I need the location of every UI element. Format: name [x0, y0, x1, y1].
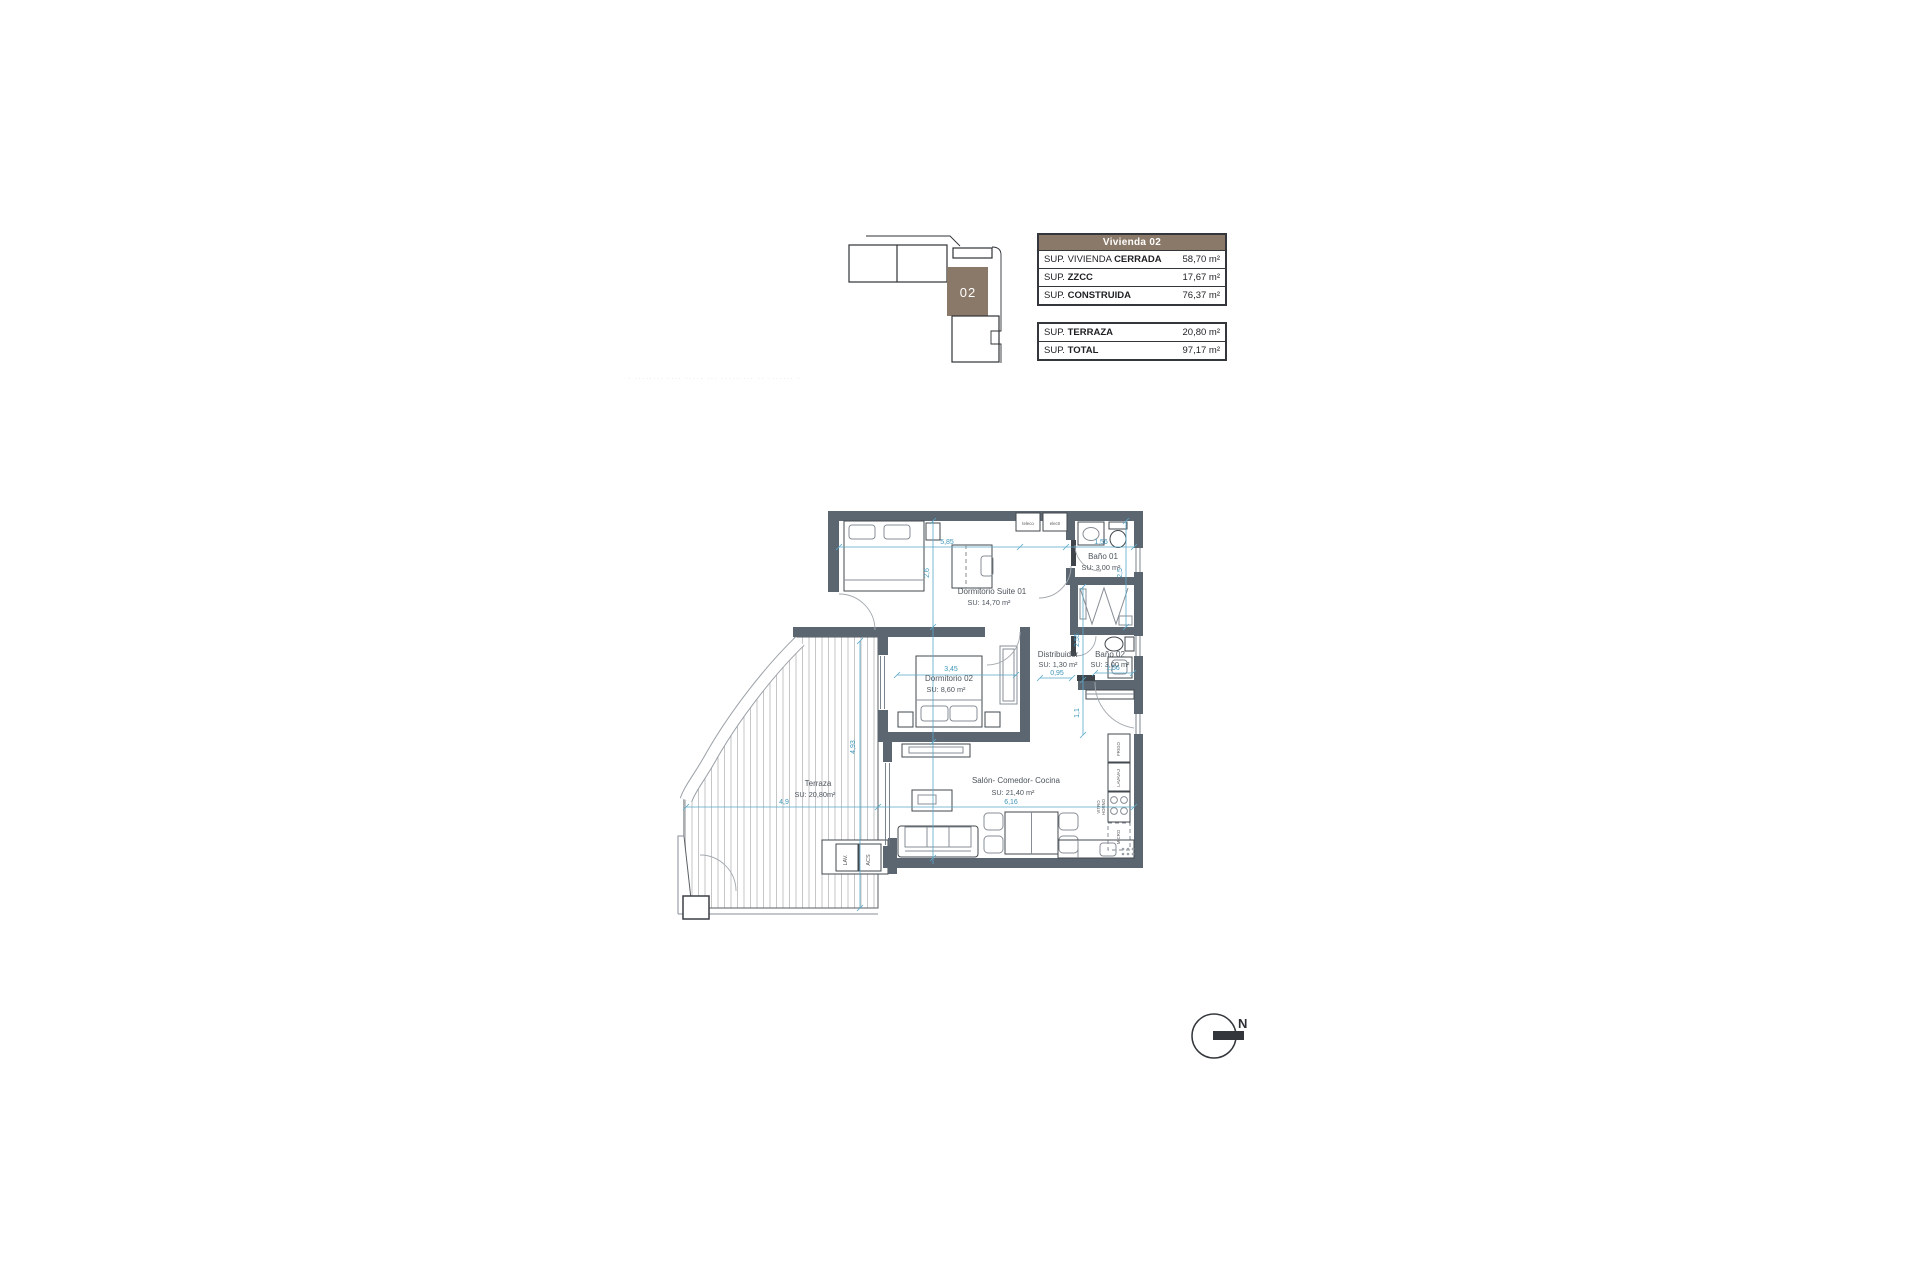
terrace-name: Terraza: [805, 779, 832, 788]
dim-585: 5,85: [940, 539, 954, 546]
suite-area: SU: 14,70 m²: [968, 598, 1012, 607]
floor-plan-sheet: { "colors":{"wall":"#5c6670","dim":"#5aa…: [0, 0, 1920, 1280]
row-label: SUP. CONSTRUIDA: [1044, 290, 1131, 301]
sofa: [898, 826, 978, 857]
table-row: SUP. TERRAZA 20,80 m²: [1039, 324, 1225, 341]
row-label: SUP. TERRAZA: [1044, 327, 1113, 338]
compass-needle: [1213, 1031, 1244, 1040]
key-plan-unit-label: 02: [960, 285, 976, 300]
dining-set: [984, 812, 1078, 854]
bath2-area: SU: 3,00 m²: [1091, 660, 1130, 669]
row-value: 58,70 m²: [1183, 254, 1221, 265]
compass-n-label: N: [1238, 1016, 1247, 1031]
hall-name: Distribuidor: [1038, 650, 1079, 659]
micro-label: MICRO: [1116, 829, 1121, 844]
row-value: 97,17 m²: [1183, 345, 1221, 356]
bedroom2-area: SU: 8,60 m²: [927, 685, 966, 694]
table-row: SUP. ZZCC 17,67 m²: [1039, 268, 1225, 286]
kitchen-counter: [1058, 840, 1134, 858]
bath1-name: Baño 01: [1088, 552, 1118, 561]
dim-49: 4,9: [779, 799, 789, 806]
area-table-header: Vivienda 02: [1039, 235, 1225, 250]
row-value: 17,67 m²: [1183, 272, 1221, 283]
row-value: 76,37 m²: [1183, 290, 1221, 301]
row-label: SUP. ZZCC: [1044, 272, 1093, 283]
suite-bed: [844, 521, 940, 591]
table-row: SUP. VIVIENDA CERRADA 58,70 m²: [1039, 250, 1225, 268]
area-table-totals: SUP. TERRAZA 20,80 m² SUP. TOTAL 97,17 m…: [1037, 322, 1227, 361]
planter: [683, 896, 709, 919]
area-table-main: Vivienda 02 SUP. VIVIENDA CERRADA 58,70 …: [1037, 233, 1227, 306]
bath1-area: SU: 3,00 m²: [1082, 563, 1121, 572]
frigo-label: FRIGO: [1116, 742, 1121, 756]
dim-255: 2,55: [1074, 633, 1081, 647]
hall-area: SU: 1,30 m²: [1039, 660, 1078, 669]
lavavajillas-label: LAVAVAJ: [1116, 769, 1121, 787]
terrace: LAV. ACS: [678, 635, 888, 919]
table-row: SUP. TOTAL 97,17 m²: [1039, 341, 1225, 359]
bath2-name: Baño 02: [1095, 650, 1125, 659]
electr-label: electr: [1050, 521, 1061, 526]
fine-print: · ········ ···· ····· ··· ········· ·· ·…: [628, 375, 803, 382]
dim-156-top: 1,56: [1094, 539, 1108, 546]
dim-26: 2,6: [924, 568, 931, 578]
dim-11: 1,1: [1074, 708, 1081, 718]
salon-name: Salón- Comedor- Cocina: [972, 776, 1061, 785]
entry-door-leaf: [1071, 540, 1076, 566]
sink-drainer: [1122, 848, 1135, 856]
key-plan: 02: [849, 236, 1001, 363]
kitchen-column: FRIGO LAVAVAJ VITRO HORNO MICRO: [1096, 734, 1130, 850]
lav-label: LAV.: [843, 854, 849, 865]
acs-label: ACS: [866, 854, 872, 866]
north-arrow: N: [1192, 1014, 1247, 1058]
dim-095: 0,95: [1050, 670, 1064, 677]
teleco-label: teleco: [1022, 521, 1034, 526]
suite-desk: [952, 545, 993, 588]
bedroom2-name: Dormitorio 02: [925, 674, 974, 683]
closet-block: [1080, 588, 1132, 625]
row-value: 20,80 m²: [1183, 327, 1221, 338]
salon-area: SU: 21,40 m²: [992, 788, 1036, 797]
dim-345: 3,45: [944, 666, 958, 673]
plan-canvas: 02 LAV. ACS: [0, 0, 1920, 1280]
dim-616: 6,16: [1004, 799, 1018, 806]
table-row: SUP. CONSTRUIDA 76,37 m²: [1039, 286, 1225, 304]
terrace-area: SU: 20,80m²: [795, 790, 837, 799]
suite-name: Dormitorio Suite 01: [958, 587, 1027, 596]
laundry-closet: LAV. ACS: [822, 840, 888, 874]
row-label: SUP. VIVIENDA CERRADA: [1044, 254, 1162, 265]
dim-493: 4,93: [850, 740, 857, 754]
row-label: SUP. TOTAL: [1044, 345, 1098, 356]
